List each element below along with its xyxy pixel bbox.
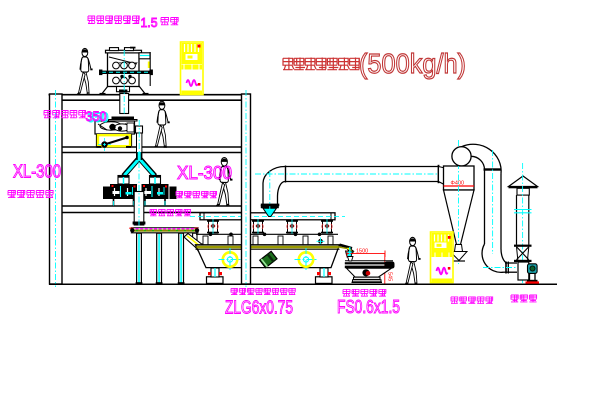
svg-text:1500: 1500 xyxy=(356,249,368,255)
svg-text:XL-300: XL-300 xyxy=(177,162,232,183)
svg-text:545: 545 xyxy=(387,272,393,281)
svg-text:FS0.6x1.5: FS0.6x1.5 xyxy=(337,296,400,317)
svg-text:1.5: 1.5 xyxy=(141,16,158,30)
svg-text:Φ400: Φ400 xyxy=(451,181,465,187)
svg-text:350: 350 xyxy=(86,109,107,124)
svg-text:XL-300: XL-300 xyxy=(13,162,61,182)
svg-text:ZLG6x0.75: ZLG6x0.75 xyxy=(225,297,293,318)
svg-text:(500kg/h): (500kg/h) xyxy=(359,48,466,79)
